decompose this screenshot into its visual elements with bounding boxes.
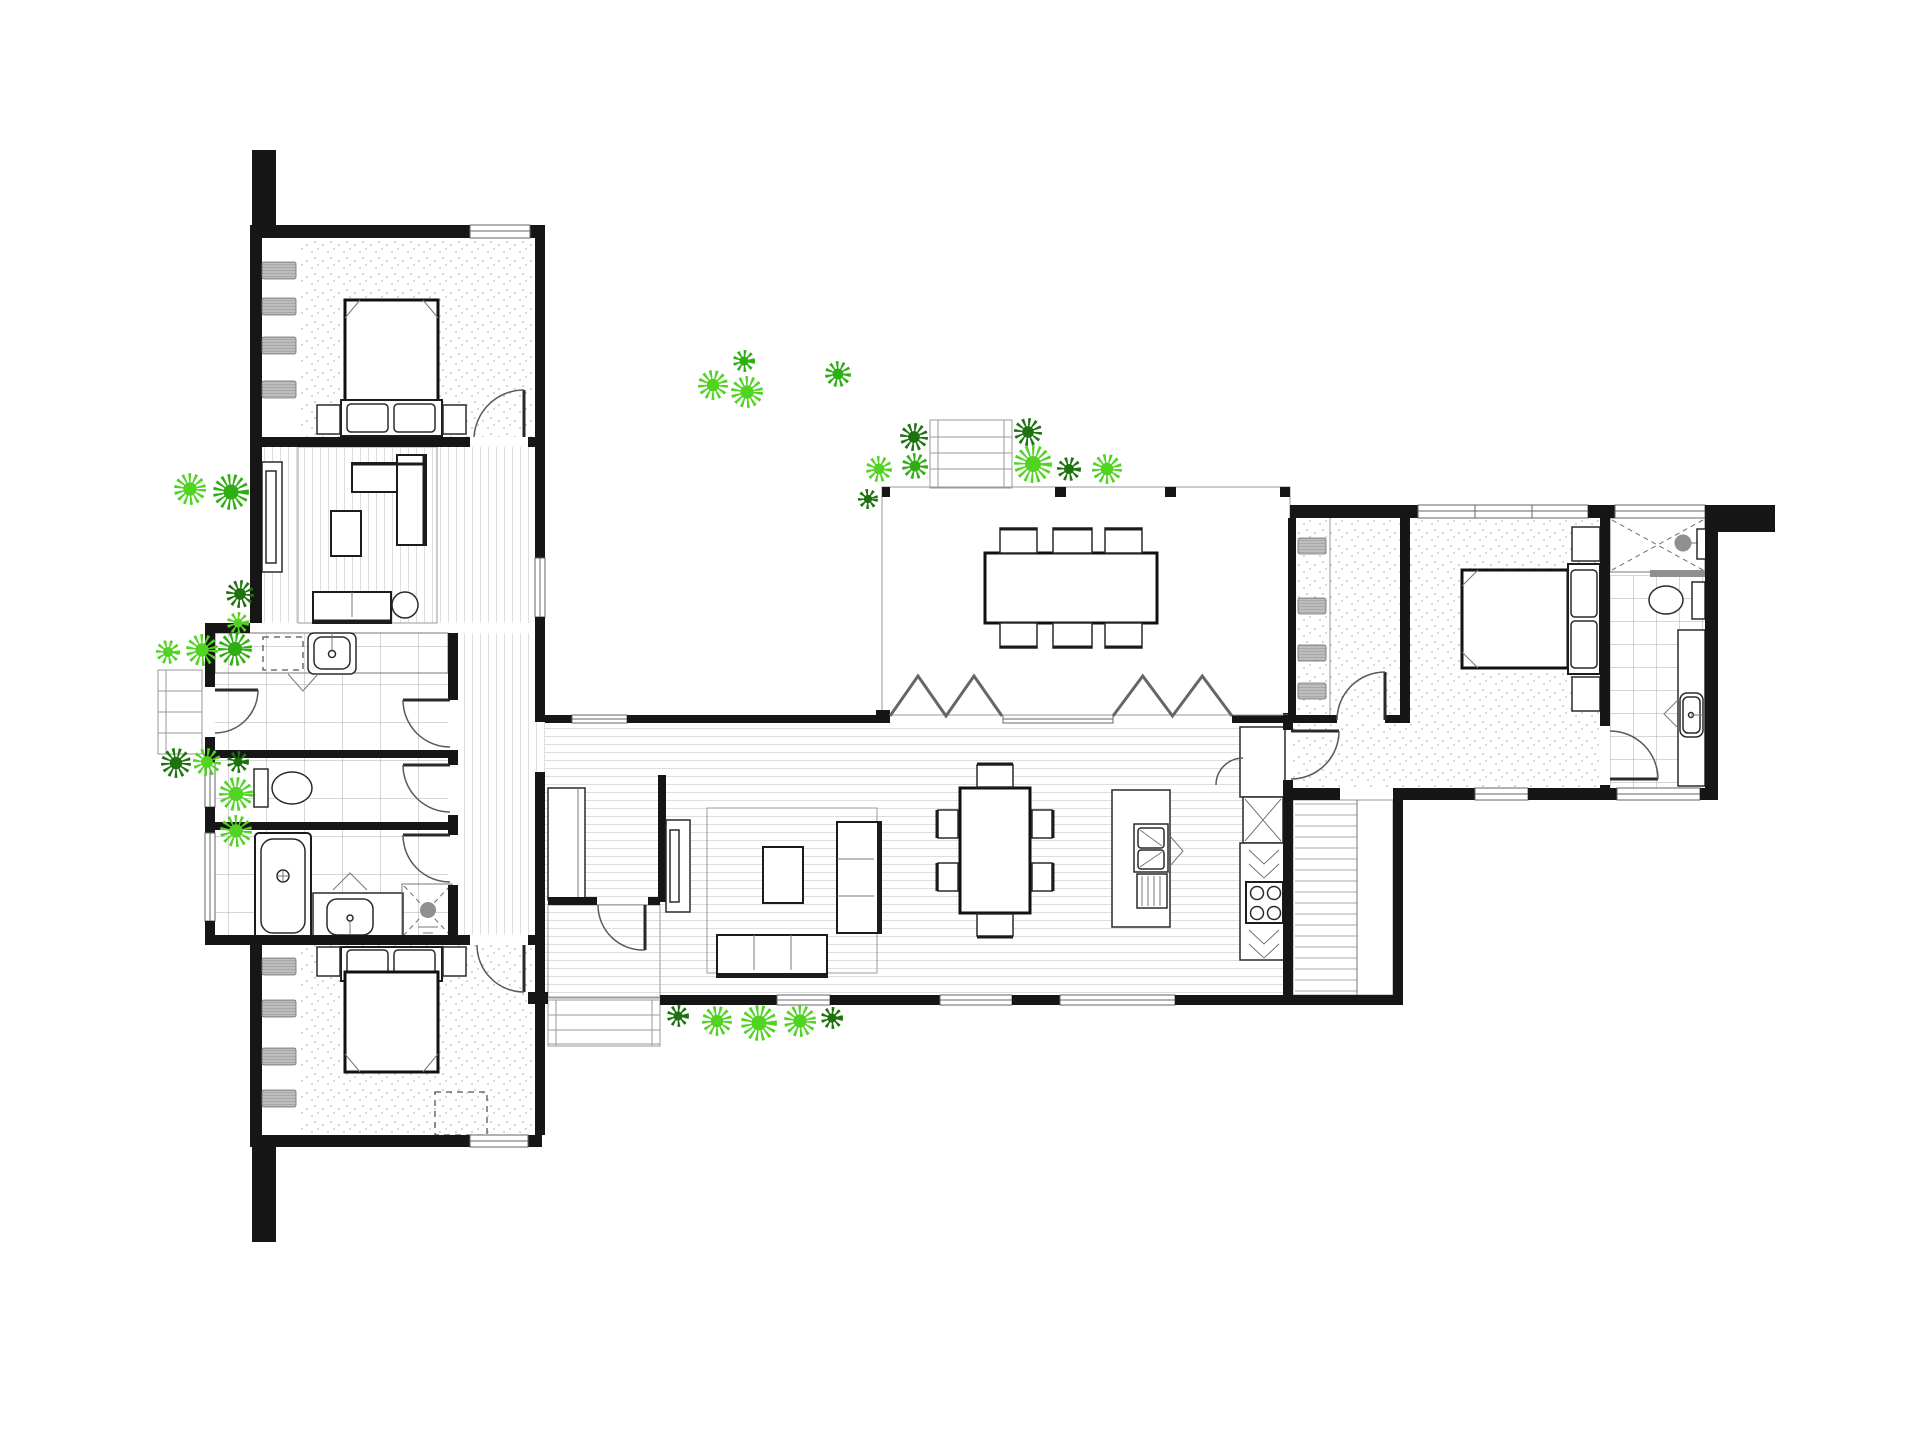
plant-icon	[233, 618, 242, 627]
plant-icon	[223, 484, 238, 499]
sofa-side	[837, 822, 881, 933]
louvre-window	[1298, 683, 1326, 699]
north-deck	[876, 420, 1290, 721]
bathtub-inner	[261, 839, 305, 933]
bed-pillow	[394, 404, 435, 432]
shower-head-icon	[1675, 535, 1692, 552]
hallway-floorboards	[458, 633, 535, 935]
master-wing	[1283, 505, 1775, 1005]
plant-icon	[1025, 456, 1041, 472]
plant-icon	[1064, 464, 1074, 474]
outdoor-chair	[1105, 528, 1142, 553]
west-entry-steps	[158, 670, 202, 754]
tv-wall	[658, 775, 666, 902]
burner	[1268, 907, 1281, 920]
plant-icon	[229, 824, 242, 837]
toilet-cistern	[1692, 582, 1705, 619]
dining-chair	[938, 810, 958, 838]
toilet-bowl	[272, 772, 312, 804]
left-wing	[158, 150, 545, 1242]
mudroom-closet	[548, 788, 585, 900]
louvre-window	[262, 1090, 296, 1107]
bed-pillow	[1571, 621, 1597, 668]
bed-mattress	[1462, 570, 1568, 668]
burner	[1251, 907, 1264, 920]
bifold-doors-layer	[890, 676, 1232, 716]
plant-icon	[739, 356, 748, 365]
walk-in-robe	[1293, 800, 1393, 995]
dining-chair	[977, 914, 1013, 936]
plant-icon	[740, 385, 753, 398]
plant-icon	[874, 464, 885, 475]
outdoor-chair	[1105, 623, 1142, 648]
bedside-table	[1572, 527, 1600, 561]
outdoor-chair	[1000, 528, 1037, 553]
dining-chair	[938, 863, 958, 891]
deck-post	[1280, 487, 1290, 497]
plant-icon	[1101, 463, 1114, 476]
dining-chair	[977, 765, 1013, 787]
bifold-door-icon	[890, 676, 1002, 716]
plant-icon	[183, 482, 196, 495]
louvre-window	[262, 262, 296, 279]
bed-mattress	[345, 972, 438, 1072]
bedside-table	[443, 947, 466, 976]
louvre-window	[1298, 645, 1326, 661]
outdoor-dining-set	[985, 528, 1157, 648]
lounge-coffee-table	[331, 511, 361, 556]
plant-icon	[673, 1011, 682, 1020]
plant-icon	[170, 757, 183, 770]
louvre-window	[262, 381, 296, 398]
deck-post	[876, 710, 890, 721]
outdoor-chair	[1053, 528, 1092, 553]
outdoor-table	[985, 553, 1157, 623]
chimney-stub-top	[252, 150, 276, 237]
deck-stairs	[930, 420, 1012, 488]
living-wing	[528, 713, 1293, 1046]
plant-icon	[707, 379, 720, 392]
deck-post	[882, 487, 890, 497]
louvre-window	[262, 958, 296, 975]
bed-mattress	[345, 300, 438, 402]
shower-head-icon	[420, 902, 436, 918]
toilet-cistern	[254, 769, 268, 807]
deck-post	[1055, 487, 1066, 497]
outdoor-chair	[1053, 623, 1092, 648]
wc	[254, 769, 312, 807]
louvre-window	[262, 1048, 296, 1065]
burner	[1251, 887, 1264, 900]
plant-icon	[864, 495, 872, 503]
bifold-door-icon	[1113, 676, 1232, 716]
plant-icon	[908, 431, 920, 443]
robe-shelving	[1295, 803, 1357, 993]
link-floor	[535, 722, 545, 772]
wc-tiles	[215, 758, 448, 822]
plant-icon	[910, 461, 921, 472]
plant-icon	[228, 642, 242, 656]
plant-icon	[711, 1015, 724, 1028]
deck-post	[1165, 487, 1176, 497]
dining-chair	[1032, 863, 1052, 891]
bed-pillow	[347, 404, 388, 432]
louvre-window	[262, 298, 296, 315]
plant-icon	[833, 369, 844, 380]
plant-icon	[1022, 426, 1034, 438]
shower-control	[1697, 529, 1706, 559]
plant-icon	[793, 1014, 806, 1027]
louvre-window	[262, 1000, 296, 1017]
floor-plan-drawing	[0, 0, 1920, 1440]
burner	[1268, 887, 1281, 900]
living-floorboards	[545, 723, 1283, 995]
plant-icon	[201, 756, 213, 768]
outdoor-chair	[1000, 623, 1037, 648]
louvre-window	[1298, 598, 1326, 614]
pantry-cabinet	[1240, 727, 1285, 797]
tv-screen	[670, 830, 679, 902]
bedside-table	[1572, 677, 1600, 711]
bed-pillow	[1571, 570, 1597, 617]
plant-icon	[233, 757, 242, 766]
bedside-table	[443, 405, 466, 434]
master-hall-carpet	[1293, 723, 1410, 788]
coffee-table	[763, 847, 803, 903]
plant-icon	[195, 643, 208, 656]
dining-table	[960, 788, 1030, 913]
laundry-tap-head	[329, 651, 336, 658]
chimney-stub-bottom	[252, 1147, 276, 1242]
louvre-window	[1298, 538, 1326, 554]
plant-icon	[229, 787, 243, 801]
bedside-table	[317, 405, 340, 434]
lounge-west-window-inner	[266, 471, 276, 563]
louvre-window	[262, 337, 296, 354]
plant-icon	[163, 647, 173, 657]
shower-half-wall	[1650, 570, 1705, 577]
l-sofa-chaise	[397, 455, 426, 545]
plant-icon	[751, 1015, 766, 1030]
floor-plan-page	[0, 0, 1920, 1440]
entry-steps	[548, 1000, 660, 1046]
lounge-side-table	[392, 592, 418, 618]
dining-chair	[1032, 810, 1052, 838]
bedside-table	[317, 947, 340, 976]
bath-tap-head	[347, 915, 353, 921]
plant-icon	[827, 1013, 836, 1022]
toilet-bowl	[1649, 586, 1683, 614]
l-sofa-seat	[352, 463, 399, 492]
plant-icon	[234, 588, 246, 600]
sofa-three-seat	[717, 935, 827, 977]
